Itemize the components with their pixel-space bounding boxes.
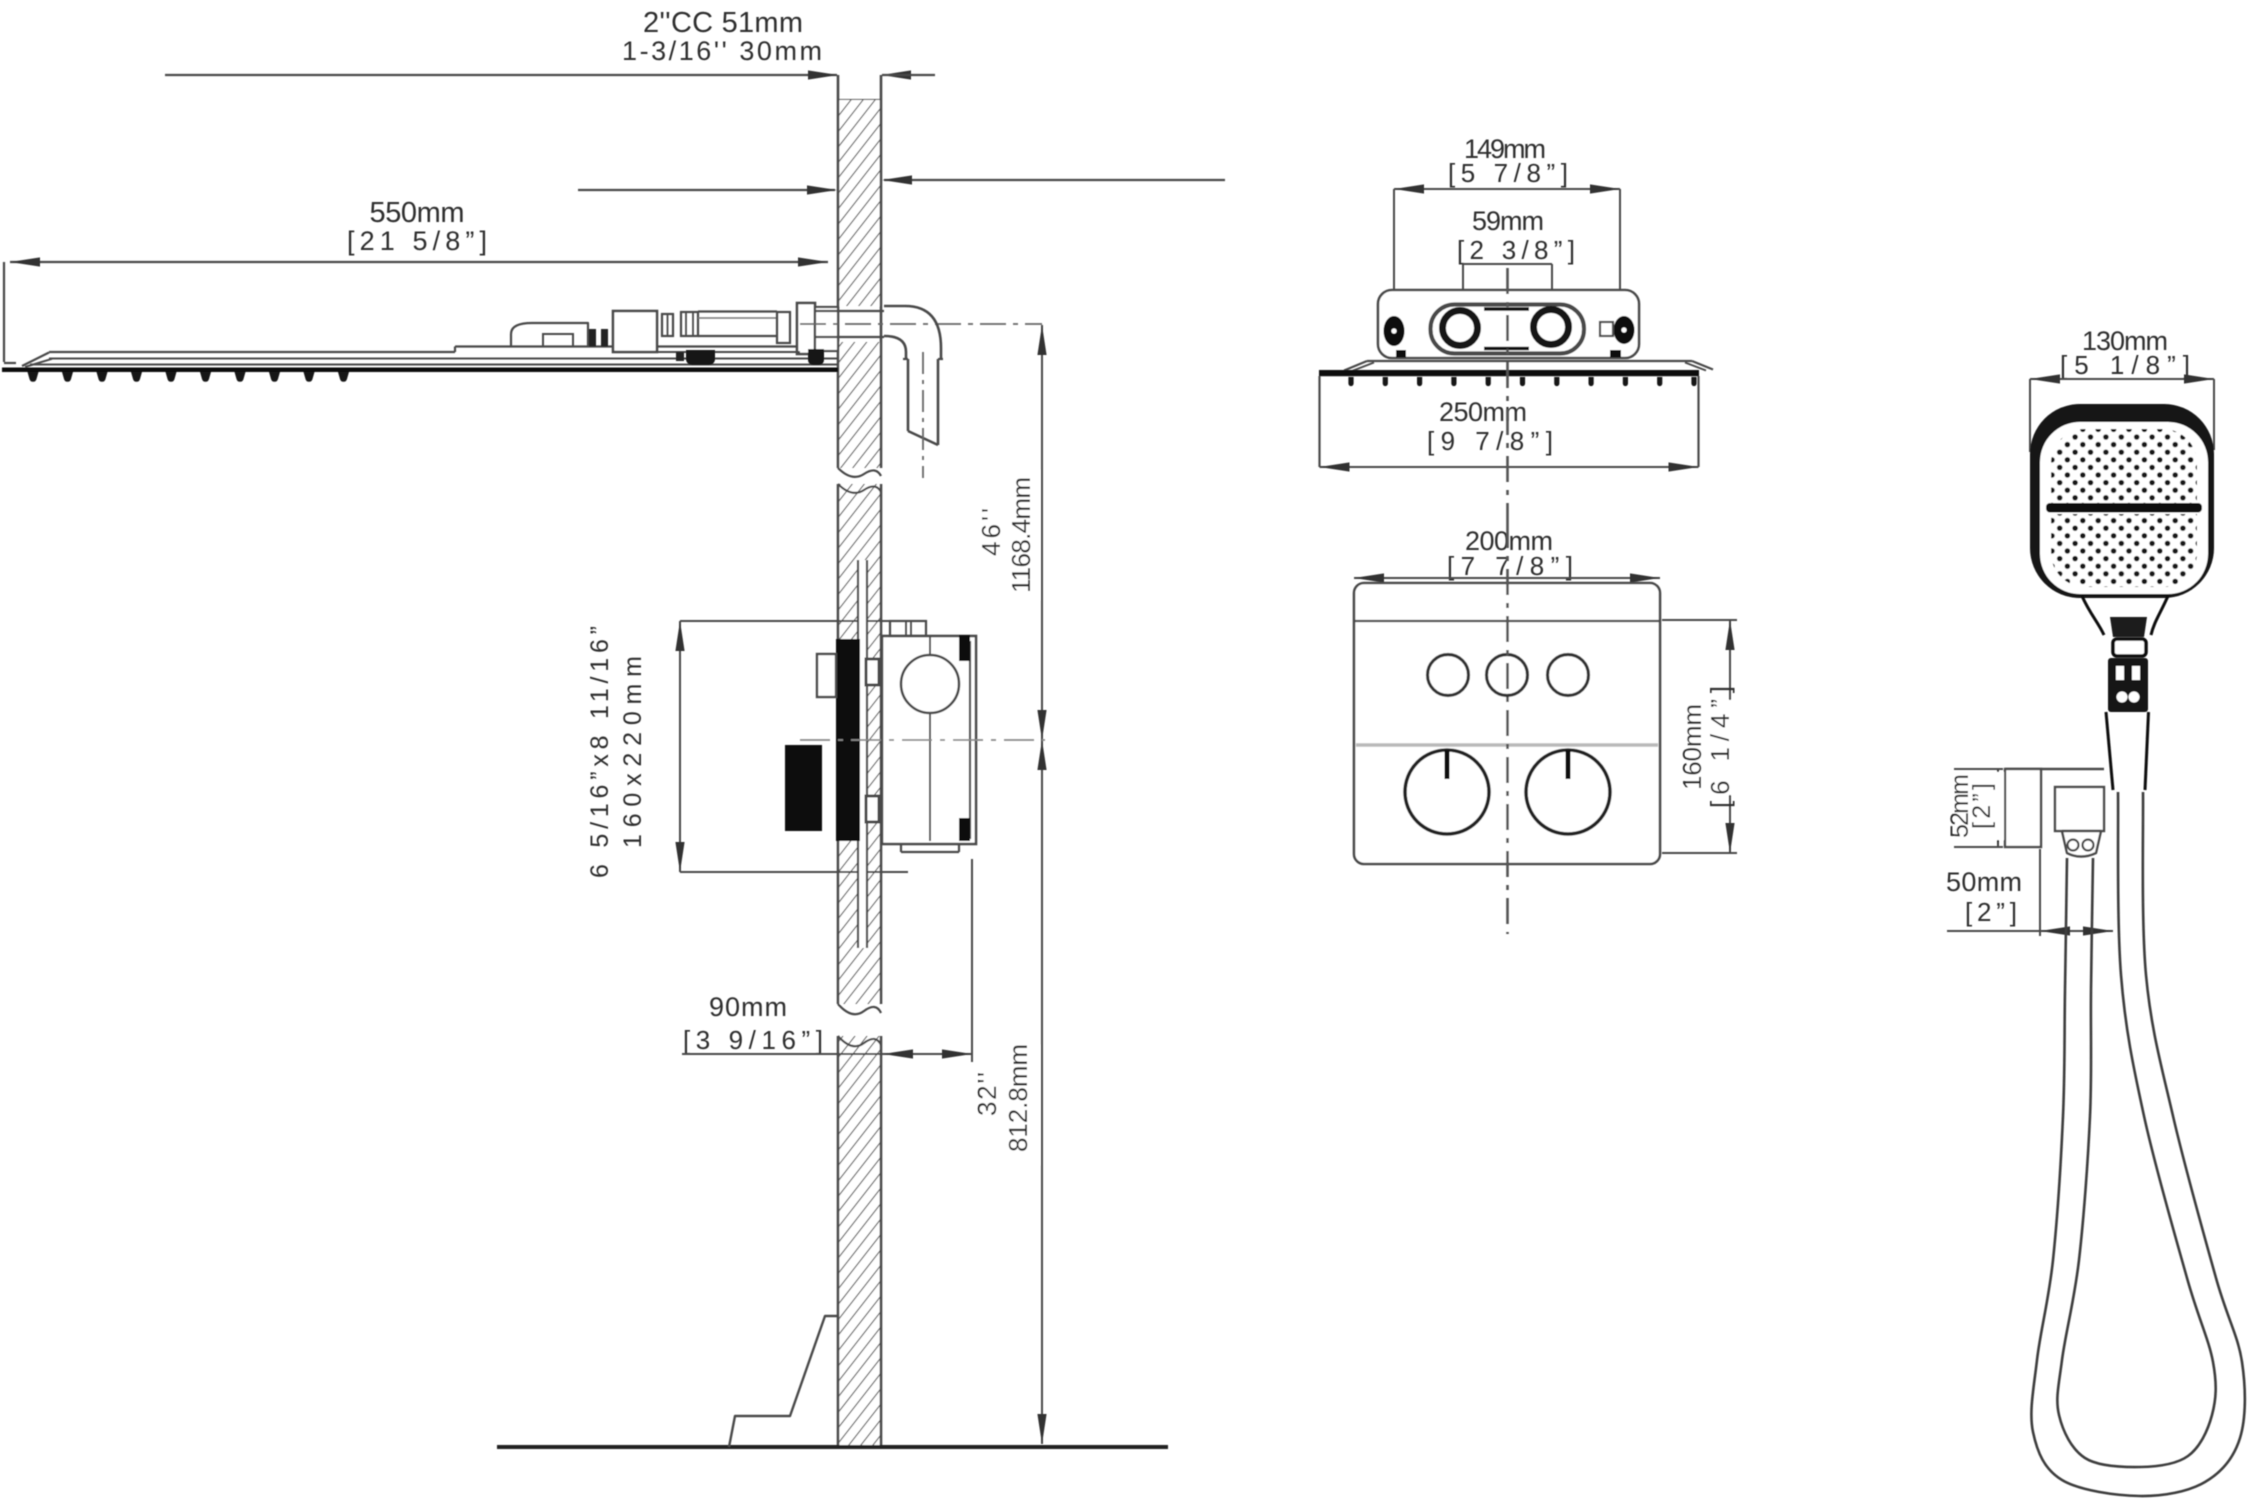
svg-text:550mm: 550mm (370, 197, 465, 229)
svg-text:2''CC 51mm: 2''CC 51mm (643, 7, 803, 39)
svg-text:59mm: 59mm (1472, 206, 1544, 236)
svg-text:250mm: 250mm (1439, 397, 1527, 427)
svg-text:[3 9/16”]: [3 9/16”] (683, 1025, 823, 1055)
svg-text:[2 3/8”]: [2 3/8”] (1457, 235, 1575, 265)
svg-text:[2”]: [2”] (1968, 783, 1996, 829)
svg-text:90mm: 90mm (709, 992, 787, 1022)
svg-text:812.8mm: 812.8mm (1003, 1044, 1033, 1152)
svg-text:50mm: 50mm (1946, 867, 2022, 897)
svg-text:1-3/16'' 30mm: 1-3/16'' 30mm (622, 36, 822, 66)
svg-text:1168.4mm: 1168.4mm (1006, 477, 1036, 593)
svg-text:[5 7/8”]: [5 7/8”] (1448, 158, 1568, 188)
svg-text:[21 5/8”]: [21 5/8”] (347, 226, 487, 256)
svg-text:160mm: 160mm (1677, 704, 1707, 790)
